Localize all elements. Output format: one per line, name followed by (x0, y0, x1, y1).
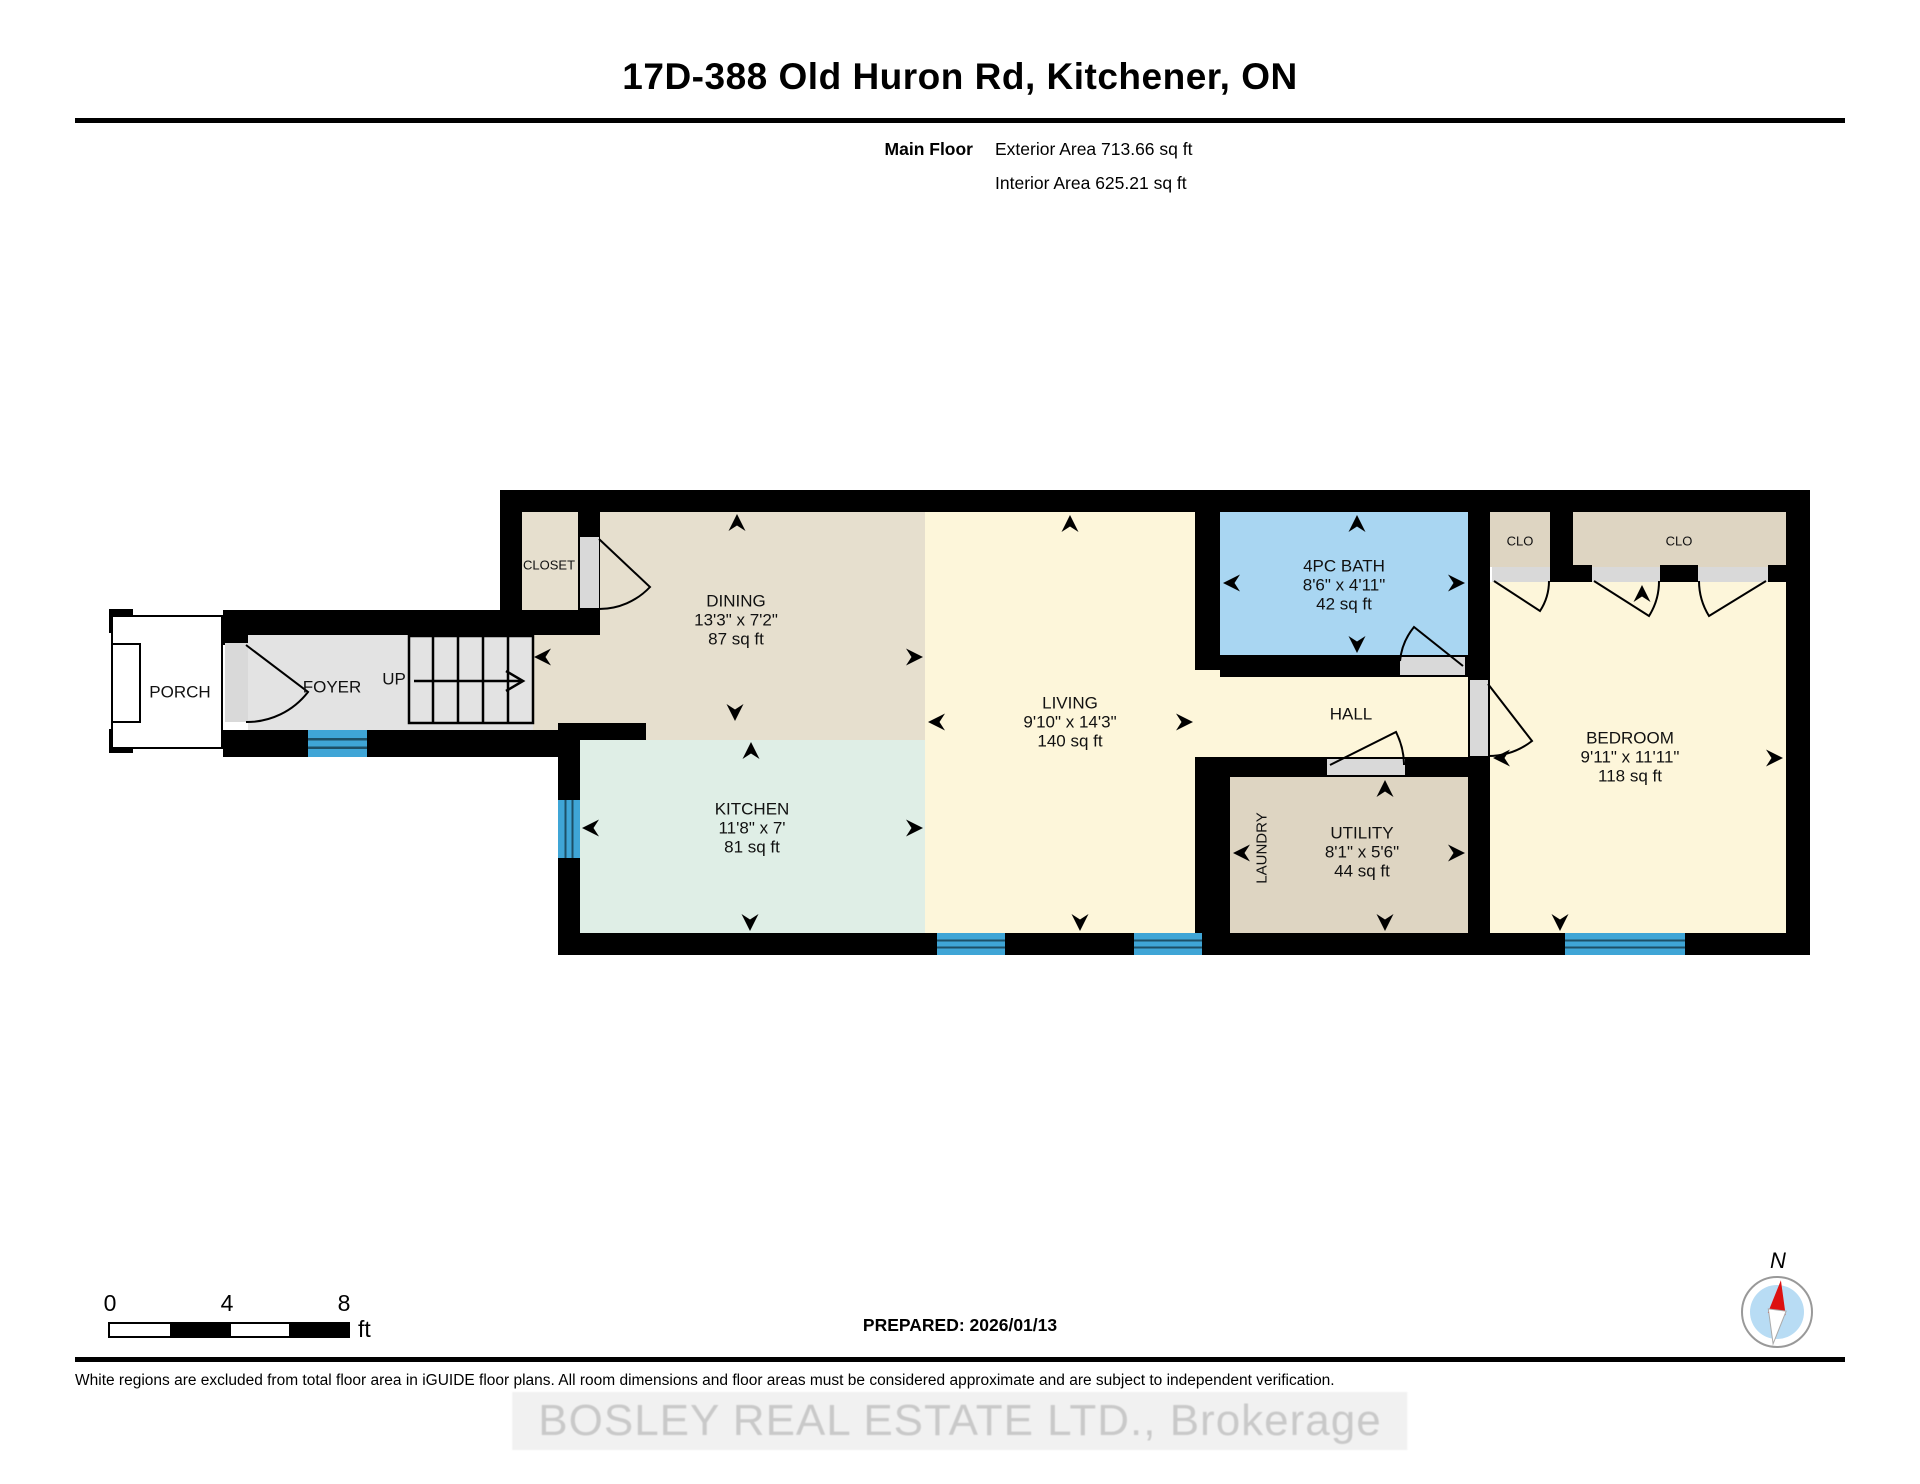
floor-plan-page: 17D-388 Old Huron Rd, Kitchener, ON Main… (0, 0, 1920, 1484)
wall (1660, 565, 1698, 582)
door-opening (1327, 759, 1405, 775)
door-opening (1492, 567, 1550, 582)
window-kitchen (558, 800, 580, 858)
prepared-date: PREPARED: 2026/01/13 (863, 1315, 1057, 1336)
disclaimer-text: White regions are excluded from total fl… (75, 1372, 1335, 1390)
label-clo-small: CLO (1507, 532, 1534, 551)
label-living: LIVING 9'10" x 14'3" 140 sq ft (1023, 694, 1116, 751)
door-opening (225, 643, 248, 722)
label-closet: CLOSET (523, 556, 575, 575)
window-foyer (308, 730, 367, 757)
wall (1786, 490, 1810, 955)
wall (223, 730, 580, 757)
door-opening (1400, 657, 1465, 675)
label-bedroom: BEDROOM 9'11" x 11'11" 118 sq ft (1581, 729, 1680, 786)
wall (1195, 512, 1220, 670)
label-laundry: LAUNDRY (1253, 812, 1272, 883)
door-opening (1592, 567, 1660, 582)
window-living-1 (937, 933, 1005, 955)
wall (1768, 565, 1788, 582)
door-opening (1698, 567, 1768, 582)
label-utility: UTILITY 8'1" x 5'6" 44 sq ft (1325, 824, 1399, 881)
compass-north-label: N (1770, 1248, 1786, 1273)
scale-tick-4: 4 (221, 1290, 234, 1317)
wall (1195, 757, 1230, 933)
window-bedroom (1565, 933, 1685, 955)
door-opening (1470, 680, 1488, 756)
brokerage-watermark: BOSLEY REAL ESTATE LTD., Brokerage (512, 1392, 1407, 1450)
wall (500, 490, 1810, 512)
porch-step (111, 643, 141, 723)
label-kitchen: KITCHEN 11'8" x 7' 81 sq ft (715, 800, 790, 857)
scale-unit: ft (358, 1316, 371, 1343)
scale-tick-8: 8 (338, 1290, 351, 1317)
wall (1550, 512, 1573, 582)
floor-plan: PORCH FOYER UP CLOSET DINING 13'3" x 7'2… (0, 0, 1920, 1484)
window-living-2 (1134, 933, 1202, 955)
door-opening (580, 537, 599, 608)
label-hall: HALL (1330, 705, 1373, 724)
footer-divider (75, 1357, 1845, 1362)
compass: N (1732, 1240, 1822, 1370)
label-stairs-up: UP (382, 670, 406, 689)
scale-bar (108, 1322, 350, 1338)
label-dining: DINING 13'3" x 7'2" 87 sq ft (694, 592, 778, 649)
label-foyer: FOYER (303, 678, 362, 697)
label-clo-large: CLO (1666, 532, 1693, 551)
label-bath: 4PC BATH 8'6" x 4'11" 42 sq ft (1303, 557, 1386, 614)
wall (558, 723, 646, 740)
label-porch: PORCH (149, 683, 210, 702)
wall (1573, 565, 1592, 582)
scale-tick-0: 0 (104, 1290, 117, 1317)
wall (223, 610, 600, 635)
wall (500, 490, 522, 635)
